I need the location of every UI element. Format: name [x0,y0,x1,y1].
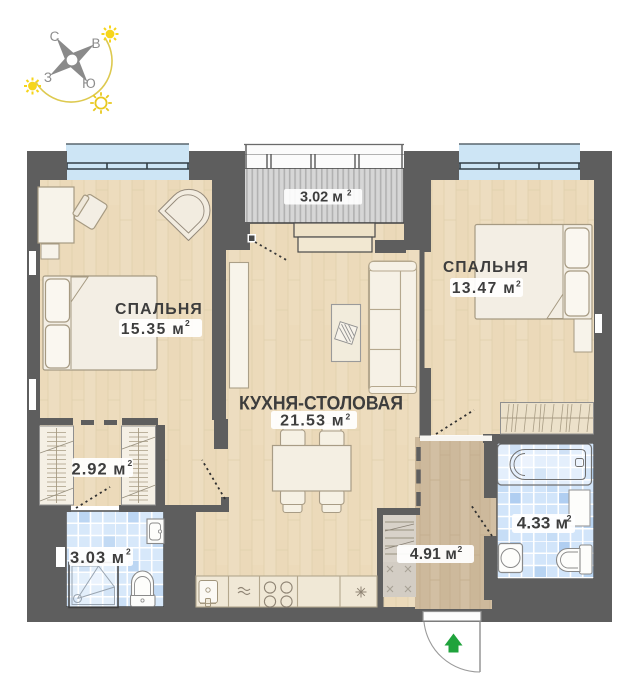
svg-text:21.53 м: 21.53 м [280,413,345,430]
svg-text:2: 2 [347,189,352,198]
svg-text:2: 2 [567,514,572,524]
svg-text:2: 2 [185,318,190,328]
svg-text:2: 2 [346,412,351,422]
svg-text:2: 2 [516,279,521,289]
svg-text:3.03 м: 3.03 м [70,549,125,567]
svg-text:4.33 м: 4.33 м [517,514,569,533]
svg-text:3.02 м: 3.02 м [300,190,343,206]
svg-text:4.91 м: 4.91 м [410,546,457,563]
svg-text:Ю: Ю [82,76,96,91]
svg-text:З: З [44,70,52,85]
svg-text:2: 2 [128,458,133,468]
svg-text:СПАЛЬНЯ: СПАЛЬНЯ [115,301,203,318]
svg-text:13.47 м: 13.47 м [452,280,516,297]
svg-text:2.92 м: 2.92 м [72,461,127,479]
svg-text:СПАЛЬНЯ: СПАЛЬНЯ [443,259,529,276]
svg-text:2: 2 [458,544,463,554]
svg-text:С: С [50,29,60,44]
svg-text:2: 2 [126,547,131,557]
svg-text:15.35 м: 15.35 м [121,321,185,338]
svg-text:В: В [91,36,100,51]
